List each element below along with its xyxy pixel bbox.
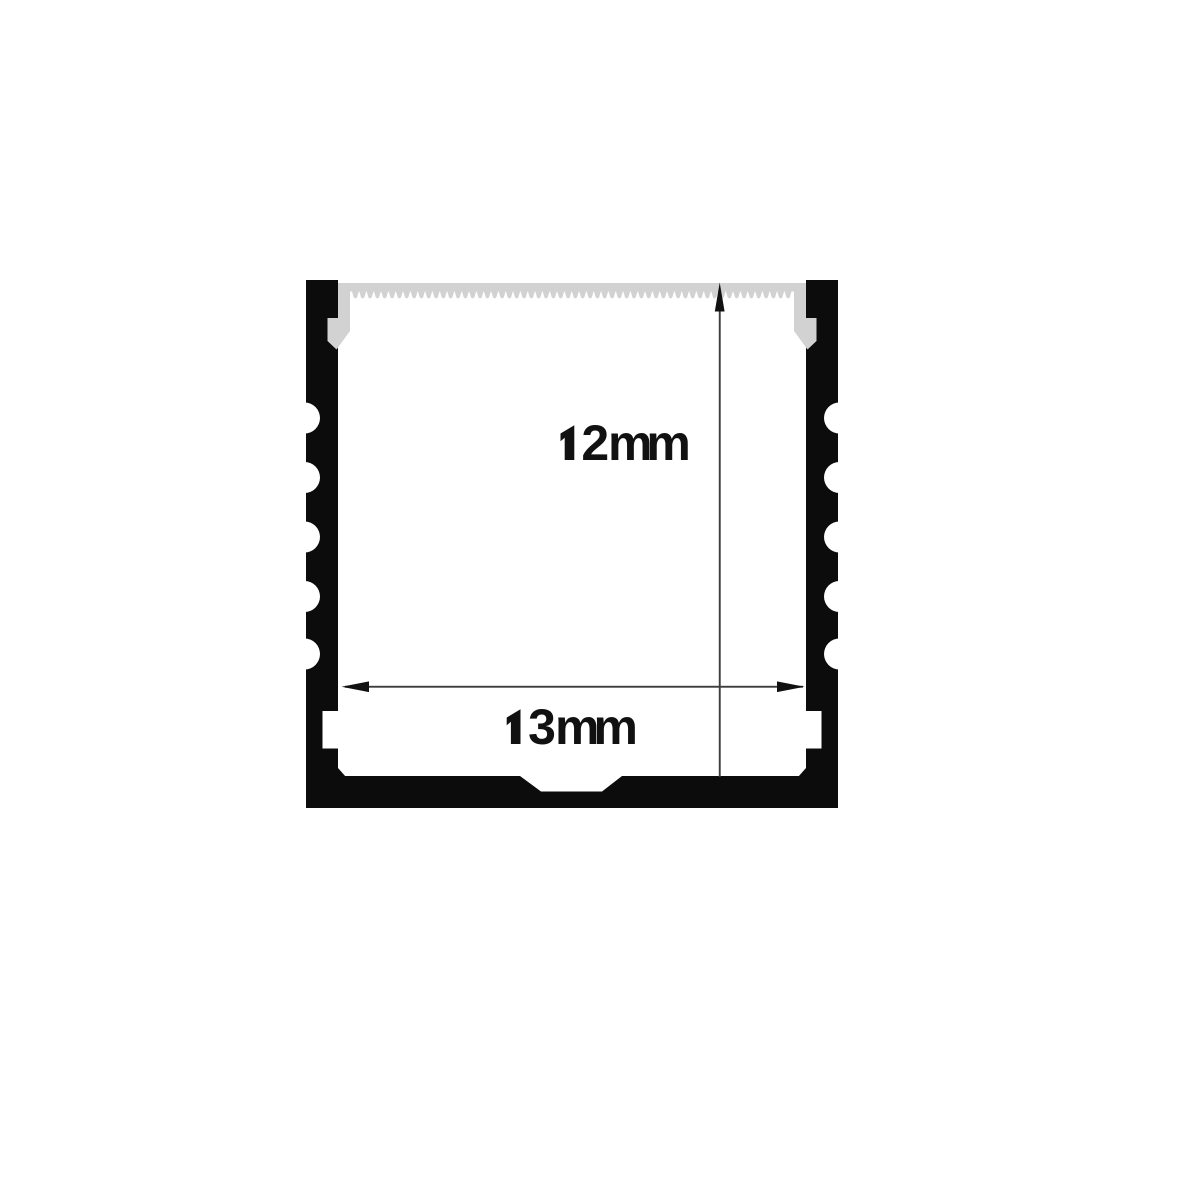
svg-text:m: m (646, 415, 690, 471)
svg-text:m: m (594, 699, 638, 755)
svg-text:3: 3 (528, 699, 556, 755)
svg-text:2: 2 (581, 415, 609, 471)
